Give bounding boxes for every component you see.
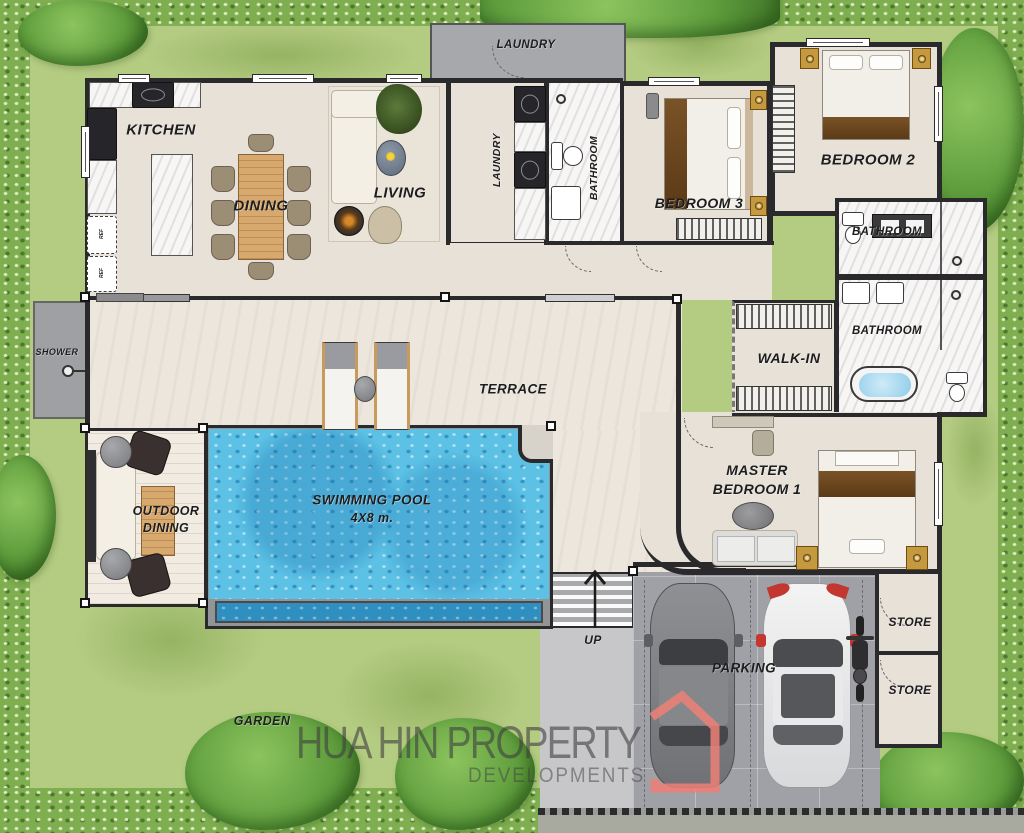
toilet	[551, 142, 563, 170]
store-divider	[875, 651, 942, 655]
room-label-parking: PARKING	[712, 661, 776, 676]
shower-head-icon	[556, 94, 566, 104]
post	[546, 421, 556, 431]
stool	[752, 430, 774, 456]
sun-lounger	[374, 342, 410, 430]
post	[440, 292, 450, 302]
up-arrow-icon	[578, 566, 612, 632]
fire-bowl	[334, 206, 364, 236]
loveseat	[712, 530, 798, 566]
room-label-laundry: LAUNDRY	[491, 133, 503, 187]
chair	[287, 166, 311, 192]
hallway	[448, 243, 772, 300]
shower-head-icon	[62, 365, 74, 377]
armchair	[368, 206, 402, 244]
chair	[211, 166, 235, 192]
toilet-bowl	[563, 146, 583, 166]
room-label-bathroom-master: BATHROOM	[852, 325, 922, 337]
room-label-shower: SHOWER	[36, 347, 79, 357]
floor-plan: KITCHEN DINING LIVING LAUNDRY LAUNDRY BA…	[0, 0, 1024, 833]
room-label-bathroom-guest: BATHROOM	[852, 226, 922, 238]
window	[934, 86, 943, 142]
room-label-dining: DINING	[234, 198, 289, 215]
sun-lounger	[322, 342, 358, 430]
plant	[376, 84, 422, 134]
shower-head-icon	[952, 256, 962, 266]
motorcycle	[846, 616, 874, 704]
post	[628, 566, 638, 576]
chair	[287, 234, 311, 260]
stove	[132, 82, 174, 108]
pouf	[732, 502, 774, 530]
shower-glass	[940, 202, 942, 274]
kitchen-counter-left	[87, 160, 117, 214]
washer	[514, 86, 546, 122]
room-label-store-upper: STORE	[888, 615, 931, 629]
speaker	[750, 196, 767, 216]
bed-bedroom2	[822, 50, 910, 140]
toilet	[946, 372, 968, 384]
post	[80, 598, 90, 608]
room-label-bathroom-front: BATHROOM	[588, 136, 600, 200]
room-label-bedroom3: BEDROOM 3	[655, 195, 743, 211]
window	[648, 77, 700, 86]
dryer	[514, 152, 546, 188]
tree	[0, 455, 56, 580]
room-label-master-2: BEDROOM 1	[713, 481, 801, 497]
sink	[842, 282, 870, 304]
speaker	[912, 48, 931, 69]
bed-master	[818, 450, 916, 568]
room-stores	[875, 570, 942, 748]
shower-head-icon	[951, 290, 961, 300]
kitchen-sink-counter	[87, 108, 117, 160]
flowers	[386, 152, 395, 161]
side-table	[100, 548, 132, 580]
room-label-store-lower: STORE	[888, 683, 931, 697]
window	[934, 462, 943, 526]
brand-house-icon	[642, 690, 724, 794]
chair	[211, 200, 235, 226]
window	[81, 126, 90, 178]
room-label-walkin: WALK-IN	[758, 350, 821, 366]
speaker	[750, 90, 767, 110]
speaker	[800, 48, 819, 69]
chair	[287, 200, 311, 226]
window	[386, 74, 422, 83]
sofa-back	[87, 450, 96, 562]
toilet	[842, 212, 864, 226]
sink	[876, 282, 904, 304]
bathtub	[850, 366, 918, 402]
fridge-label: REF	[99, 268, 105, 278]
side-table	[354, 376, 376, 402]
speaker	[796, 546, 818, 570]
hedge-left	[0, 0, 30, 833]
terrace-left-wall	[85, 296, 90, 433]
wardrobe	[736, 304, 832, 329]
car-white	[763, 583, 851, 788]
room-label-outdoor-dining-1: OUTDOOR	[133, 504, 200, 518]
room-label-terrace: TERRACE	[479, 382, 547, 397]
shower-glass	[940, 280, 942, 350]
post	[198, 423, 208, 433]
wardrobe	[676, 218, 762, 240]
bench	[96, 293, 144, 302]
fridge-label: REF	[99, 229, 105, 239]
road	[538, 815, 1024, 833]
window	[118, 74, 150, 83]
wall	[546, 241, 774, 245]
stairs-label-up: UP	[584, 633, 601, 647]
bench	[646, 93, 659, 119]
laundry-counter	[514, 122, 546, 152]
chair	[248, 262, 274, 280]
post	[672, 294, 682, 304]
wardrobe	[736, 386, 832, 411]
pool-label: SWIMMING POOL	[312, 493, 431, 508]
chair	[211, 234, 235, 260]
console	[712, 416, 774, 428]
post	[80, 292, 90, 302]
pool-size-label: 4X8 m.	[351, 511, 394, 525]
pool-ledge	[215, 601, 543, 623]
garden-label: GARDEN	[234, 714, 291, 728]
window	[252, 74, 314, 83]
room-label-kitchen: KITCHEN	[126, 122, 195, 139]
wardrobe	[772, 85, 795, 173]
outdoor-shower-pad	[33, 301, 89, 419]
outdoor-laundry-yard	[430, 23, 626, 83]
watermark-brand: HUA HIN PROPERTY	[296, 717, 640, 769]
vanity	[551, 186, 581, 220]
toilet-bowl	[949, 384, 965, 402]
window	[806, 38, 870, 47]
room-label-master-1: MASTER	[726, 462, 788, 478]
outdoor-sofa	[96, 452, 136, 560]
kitchen-island	[151, 154, 193, 256]
bed-bedroom3	[664, 98, 752, 210]
front-fence	[538, 808, 1024, 815]
side-table	[100, 436, 132, 468]
master-left-wall	[676, 300, 681, 490]
slider-door	[545, 294, 615, 302]
room-label-laundry-outdoor: LAUNDRY	[497, 39, 556, 51]
chair	[248, 134, 274, 152]
room-label-living: LIVING	[374, 185, 426, 202]
wall	[446, 80, 450, 245]
post	[198, 598, 208, 608]
watermark-brand-sub: DEVELOPMENTS	[465, 764, 645, 788]
lane-line	[750, 580, 751, 812]
laundry-counter	[514, 188, 546, 240]
speaker	[906, 546, 928, 570]
post	[80, 423, 90, 433]
room-label-outdoor-dining-2: DINING	[143, 521, 189, 535]
room-label-bedroom2: BEDROOM 2	[821, 152, 915, 169]
red-mirror	[756, 634, 766, 647]
